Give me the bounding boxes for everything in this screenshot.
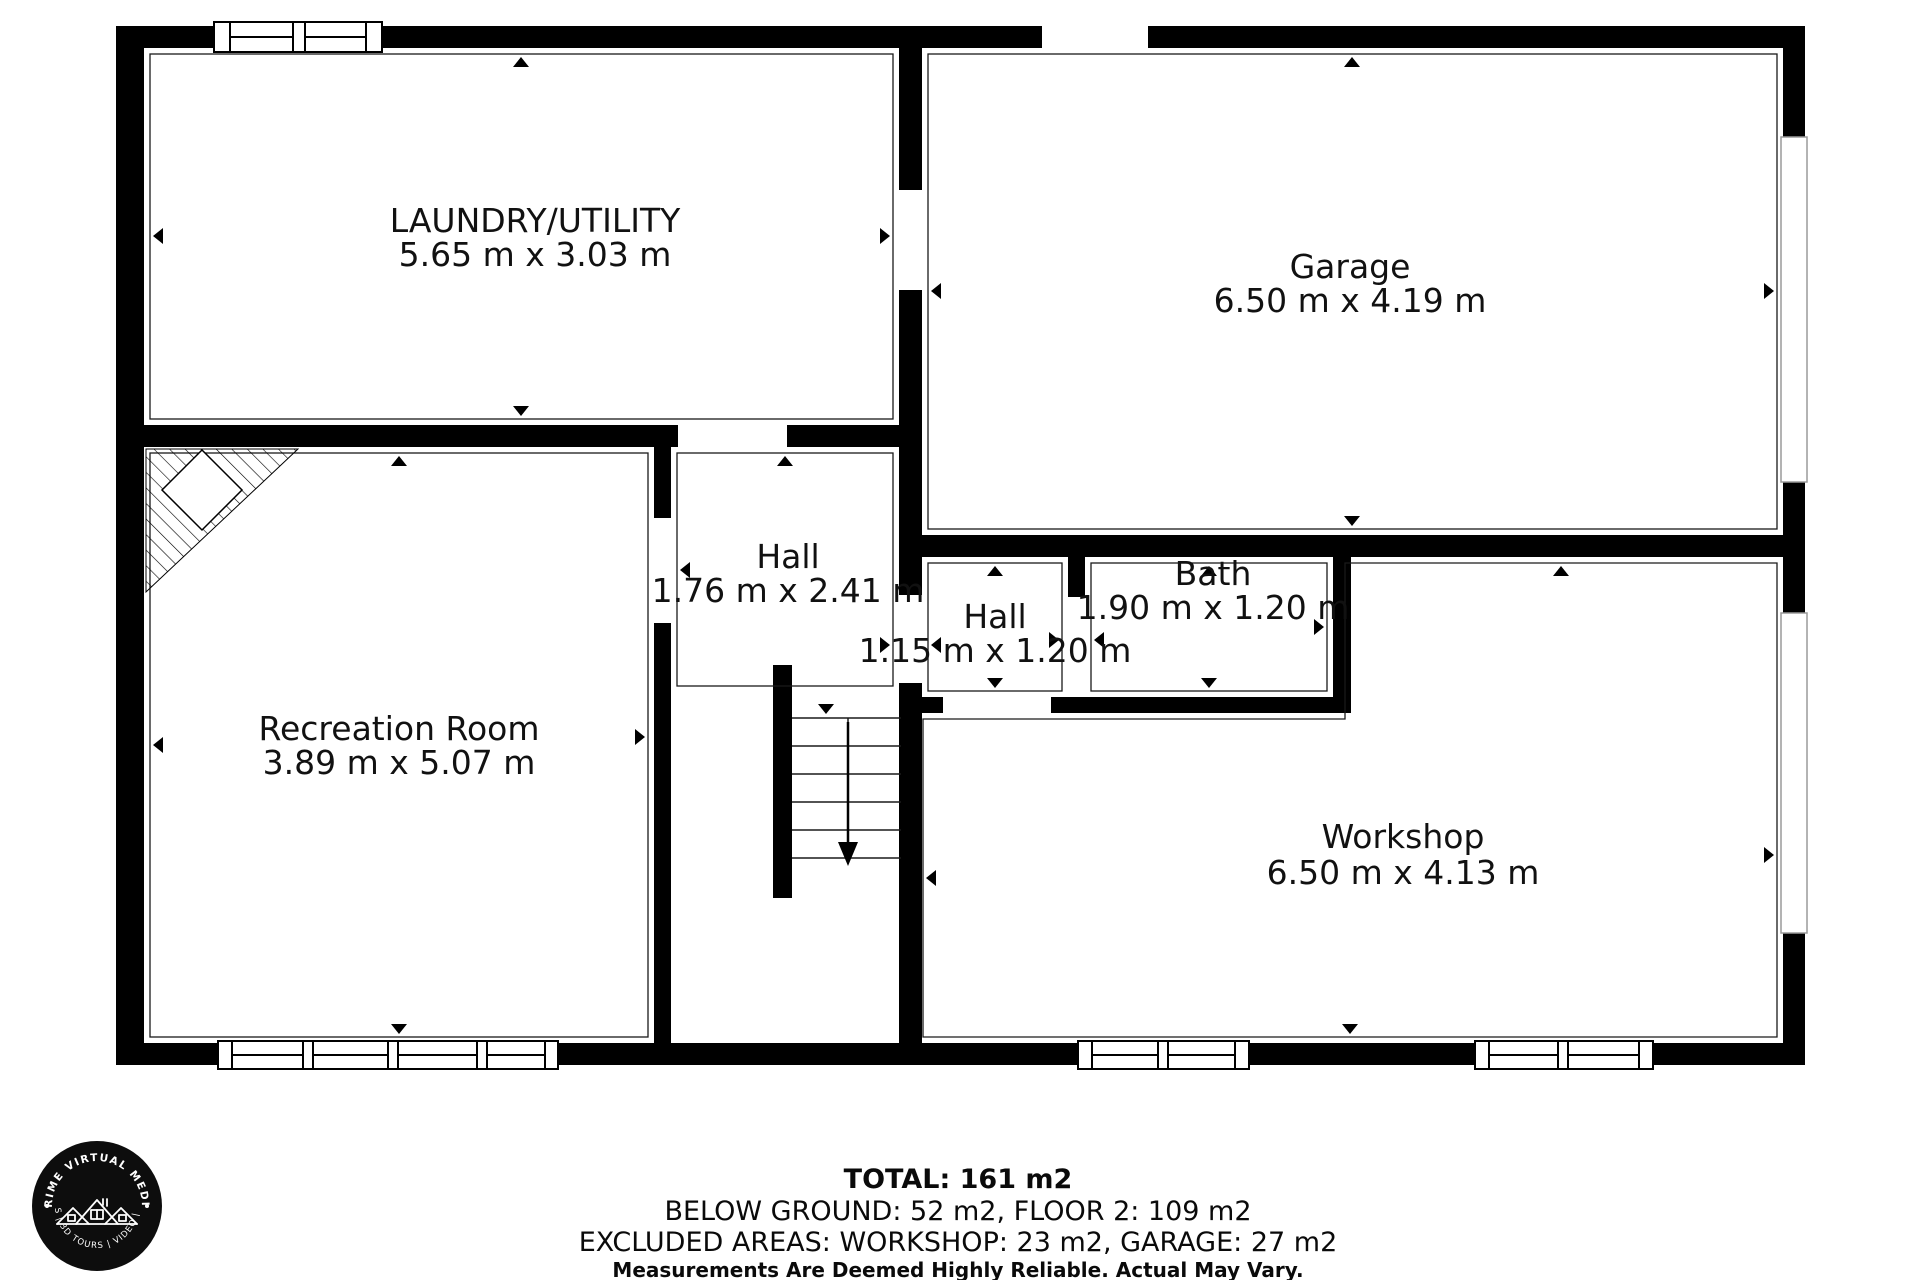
wall-stairs-left bbox=[773, 665, 792, 898]
garage-top-opening bbox=[1042, 24, 1148, 50]
room-dims-garage: 6.50 m x 4.19 m bbox=[1214, 281, 1487, 320]
stairs bbox=[792, 718, 901, 866]
window-workshop-bottom-right bbox=[1475, 1041, 1653, 1069]
wall-laundry-rec-right bbox=[787, 425, 922, 447]
window-laundry-top bbox=[214, 22, 382, 52]
summary-breakdown: BELOW GROUND: 52 m2, FLOOR 2: 109 m2 bbox=[664, 1196, 1251, 1227]
wall-rec-stairs bbox=[654, 623, 671, 1043]
window-workshop-bottom-left bbox=[1078, 1041, 1249, 1069]
summary-disclaimer: Measurements Are Deemed Highly Reliable.… bbox=[612, 1258, 1303, 1280]
summary-excluded: EXCLUDED AREAS: WORKSHOP: 23 m2, GARAGE:… bbox=[579, 1227, 1338, 1258]
wall-garage-south bbox=[899, 535, 1783, 557]
wall-stairs-right bbox=[899, 683, 922, 1043]
wall-bath-bottom bbox=[1051, 697, 1351, 713]
wall-laundry-garage-upper bbox=[899, 48, 922, 190]
wall-hall-workshop-left bbox=[899, 697, 943, 713]
wall-bath-right bbox=[1333, 557, 1351, 713]
room-dims-recreation: 3.89 m x 5.07 m bbox=[263, 743, 536, 782]
wall-outer-left bbox=[116, 26, 144, 1065]
window-workshop-right bbox=[1781, 613, 1807, 933]
walls bbox=[116, 26, 1805, 1065]
summary-total: TOTAL: 161 m2 bbox=[844, 1164, 1073, 1195]
room-dims-bath: 1.90 m x 1.20 m bbox=[1077, 588, 1350, 627]
room-label-workshop: Workshop bbox=[1322, 817, 1485, 856]
room-dims-workshop: 6.50 m x 4.13 m bbox=[1267, 853, 1540, 892]
wall-rec-hall-upper bbox=[654, 447, 671, 518]
room-dims-laundry: 5.65 m x 3.03 m bbox=[399, 235, 672, 274]
summary-block: TOTAL: 161 m2 BELOW GROUND: 52 m2, FLOOR… bbox=[579, 1164, 1338, 1280]
stairs-arrow-head bbox=[838, 842, 858, 866]
wall-laundry-rec-left bbox=[144, 425, 678, 447]
room-dims-hall-upper: 1.76 m x 2.41 m bbox=[652, 571, 925, 610]
chimney-hatch-corner bbox=[146, 449, 298, 592]
floorplan-canvas: LAUNDRY/UTILITY 5.65 m x 3.03 m Garage 6… bbox=[0, 0, 1920, 1280]
window-recreation-bottom bbox=[218, 1041, 558, 1069]
room-dims-hall-lower: 1.15 m x 1.20 m bbox=[859, 631, 1132, 670]
window-garage-right bbox=[1781, 137, 1807, 482]
